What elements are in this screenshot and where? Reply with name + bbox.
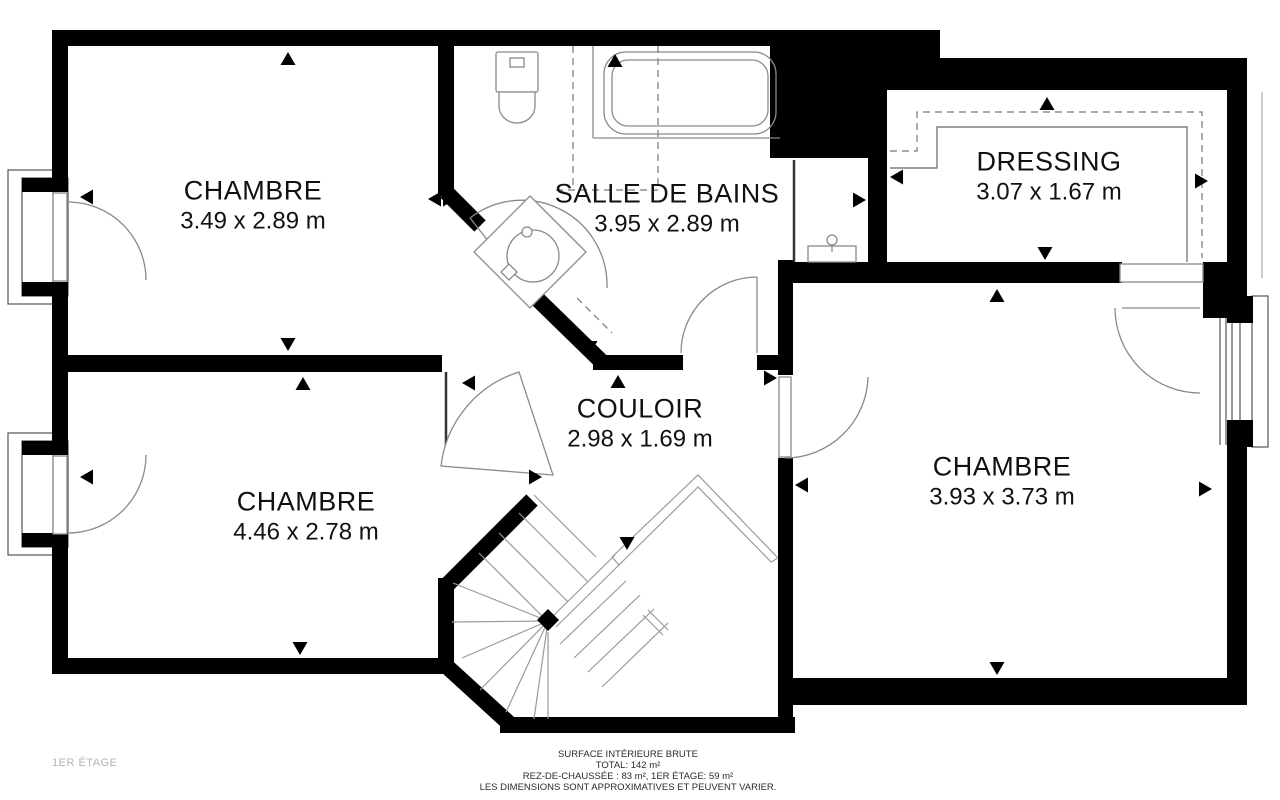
toilet-icon	[496, 52, 538, 123]
floor-plan: CHAMBRE 3.49 x 2.89 m SALLE DE BAINS 3.9…	[0, 0, 1280, 800]
staircase	[452, 475, 778, 719]
stair-newel-post	[537, 609, 559, 631]
ceiling-solid-line	[890, 127, 1187, 262]
surface-summary-disclaimer: LES DIMENSIONS SONT APPROXIMATIVES ET PE…	[480, 782, 777, 793]
floor-label: 1ER ÉTAGE	[52, 757, 117, 769]
walls	[22, 30, 1253, 733]
surface-summary-total: TOTAL: 142 m²	[480, 760, 777, 771]
wc-basin-icon	[808, 235, 856, 262]
floor-plan-drawing	[0, 0, 1280, 800]
bathtub-icon	[593, 46, 780, 138]
surface-summary: SURFACE INTÉRIEURE BRUTE TOTAL: 142 m² R…	[480, 749, 777, 793]
surface-summary-title: SURFACE INTÉRIEURE BRUTE	[480, 749, 777, 760]
window-icon	[8, 92, 1268, 555]
sink-icon	[474, 196, 586, 308]
surface-summary-floors: REZ-DE-CHAUSSÉE : 83 m², 1ER ÉTAGE: 59 m…	[480, 771, 777, 782]
